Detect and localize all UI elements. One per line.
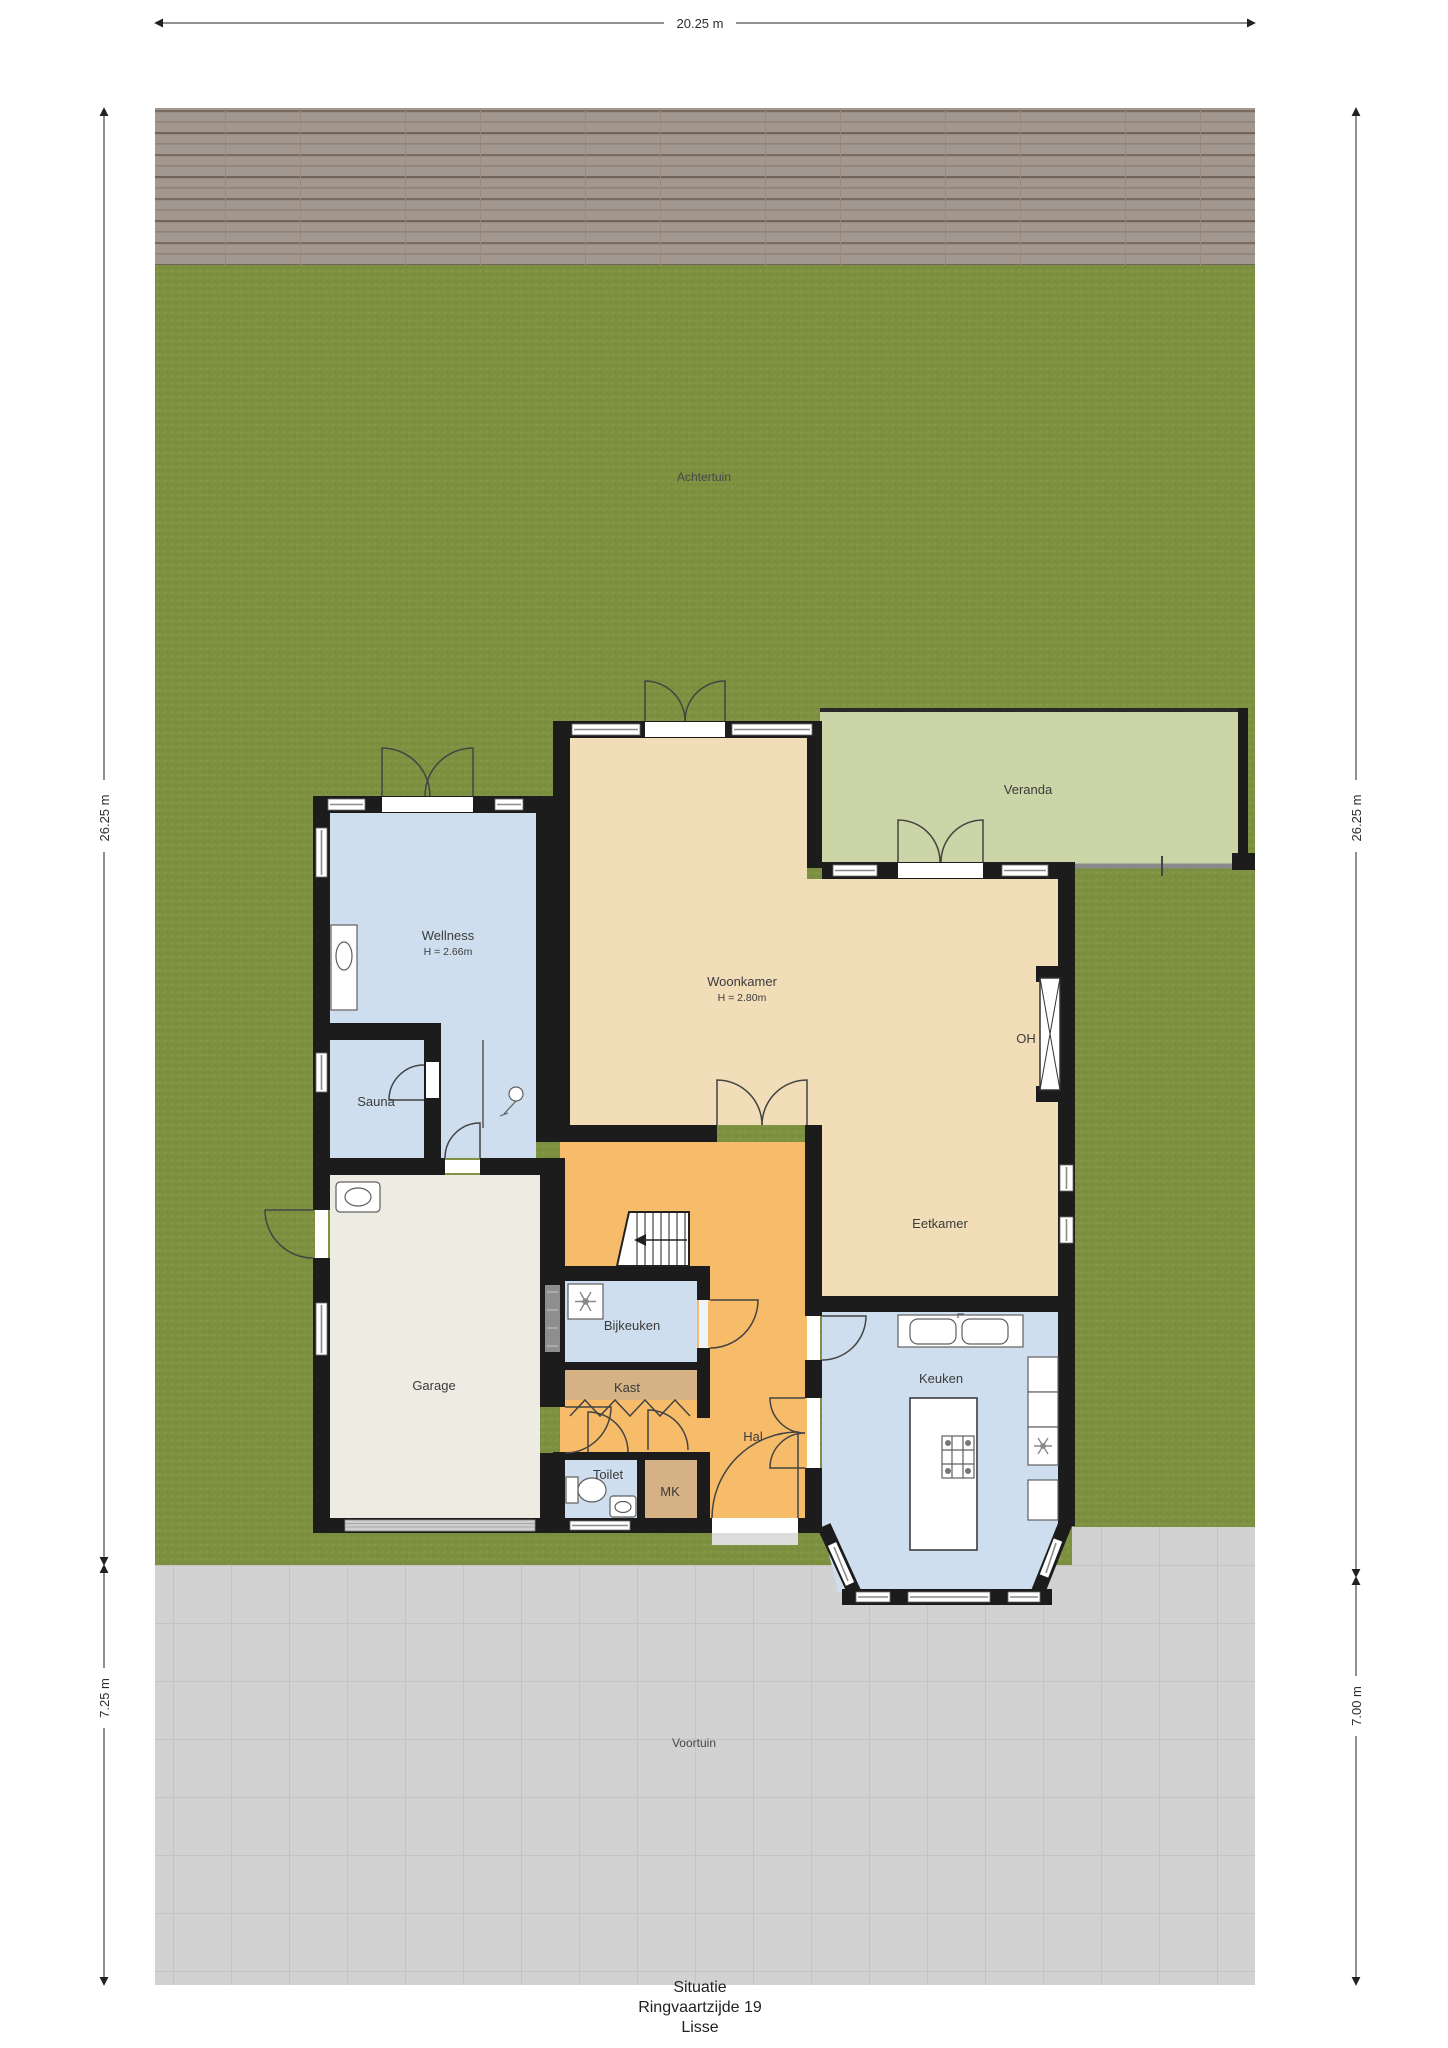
floor-plan-page: 20.25 m 26.25 m 7.25 m 26.25 m 7.00 m (0, 0, 1448, 2048)
wall (313, 1023, 441, 1040)
sink-icon (336, 942, 352, 970)
wall (560, 1125, 717, 1142)
floor-plan-canvas: 20.25 m 26.25 m 7.25 m 26.25 m 7.00 m (0, 0, 1448, 2048)
door-opening (382, 797, 473, 812)
wall (553, 1452, 710, 1460)
front-door-step (712, 1533, 798, 1545)
dimension-right-upper: 26.25 m (1349, 795, 1364, 842)
room-wellness-label: Wellness (422, 928, 475, 943)
kitchen-sink-icon (910, 1319, 956, 1344)
room-wellness-height: H = 2.66m (424, 946, 473, 958)
room-woonkamer-height: H = 2.80m (718, 992, 767, 1004)
front-garden-label: Voortuin (672, 1736, 716, 1750)
wall (1058, 862, 1075, 1526)
dimension-left-lower: 7.25 m (97, 1678, 112, 1718)
room-keuken-label: Keuken (919, 1371, 963, 1386)
sink-icon (615, 1502, 631, 1513)
room-garage-label: Garage (412, 1378, 455, 1393)
kitchen-sink-icon (962, 1319, 1008, 1344)
door-opening (807, 1398, 820, 1468)
room-kast-label: Kast (614, 1380, 640, 1395)
door-opening (645, 722, 725, 737)
wall (805, 1468, 822, 1533)
door-opening (898, 863, 983, 878)
shower-icon (509, 1087, 523, 1101)
plan-title-line3: Lisse (681, 2019, 718, 2036)
veranda-top-edge (820, 708, 1248, 712)
room-garage-floor (330, 1175, 540, 1518)
room-mk-label: MK (660, 1484, 680, 1499)
veranda-label: Veranda (1004, 782, 1053, 797)
wall (807, 721, 822, 868)
burner-icon (945, 1440, 951, 1446)
veranda-right-wall (1238, 708, 1248, 868)
plan-title-line1: Situatie (673, 1979, 726, 1996)
wall (540, 1158, 565, 1407)
wall (565, 1362, 697, 1370)
wall (313, 1258, 330, 1533)
veranda-corner-post (1232, 853, 1255, 870)
front-door-opening (712, 1518, 798, 1533)
burner-icon (965, 1468, 971, 1474)
wall (313, 1158, 445, 1175)
wall (637, 1460, 645, 1518)
plan-title-line2: Ringvaartzijde 19 (638, 1999, 762, 2016)
room-hal-label: Hal (743, 1429, 763, 1444)
wall (697, 1452, 710, 1518)
kitchen-appliance (1028, 1480, 1058, 1520)
door-opening (445, 1160, 480, 1173)
dimension-right-lower: 7.00 m (1349, 1686, 1364, 1726)
door-opening (699, 1300, 708, 1348)
dimension-top-width: 20.25 m (677, 16, 724, 31)
wood-deck-area (155, 108, 1255, 265)
wall (805, 1125, 822, 1316)
dimension-left-upper: 26.25 m (97, 795, 112, 842)
kitchen-appliance (1028, 1357, 1058, 1392)
wall (697, 1266, 710, 1300)
staircase (617, 1212, 689, 1266)
garage-door (345, 1520, 535, 1531)
interior-window (545, 1285, 560, 1352)
fireplace-label: OH (1016, 1031, 1036, 1046)
door-opening (807, 1316, 820, 1360)
kitchen-appliance (1028, 1392, 1058, 1427)
sink-icon (345, 1188, 371, 1206)
front-garden-side-strip (1072, 1527, 1255, 1567)
burner-icon (965, 1440, 971, 1446)
toilet-tank (566, 1477, 578, 1503)
burner-icon (945, 1468, 951, 1474)
room-woonkamer-label: Woonkamer (707, 974, 778, 989)
room-eetkamer-label: Eetkamer (912, 1216, 968, 1231)
wall (553, 1266, 710, 1281)
wall (697, 1348, 710, 1418)
door-opening (426, 1062, 439, 1098)
wall (536, 796, 570, 1142)
wall (822, 1296, 1058, 1312)
back-garden-label: Achtertuin (677, 470, 731, 484)
room-bijkeuken-label: Bijkeuken (604, 1318, 660, 1333)
room-toilet-label: Toilet (593, 1467, 624, 1482)
door-opening (315, 1210, 328, 1258)
front-garden-area (155, 1565, 1255, 1985)
title-block: Situatie Ringvaartzijde 19 Lisse (638, 1979, 762, 2036)
wall (805, 1360, 822, 1398)
room-sauna-label: Sauna (357, 1094, 395, 1109)
